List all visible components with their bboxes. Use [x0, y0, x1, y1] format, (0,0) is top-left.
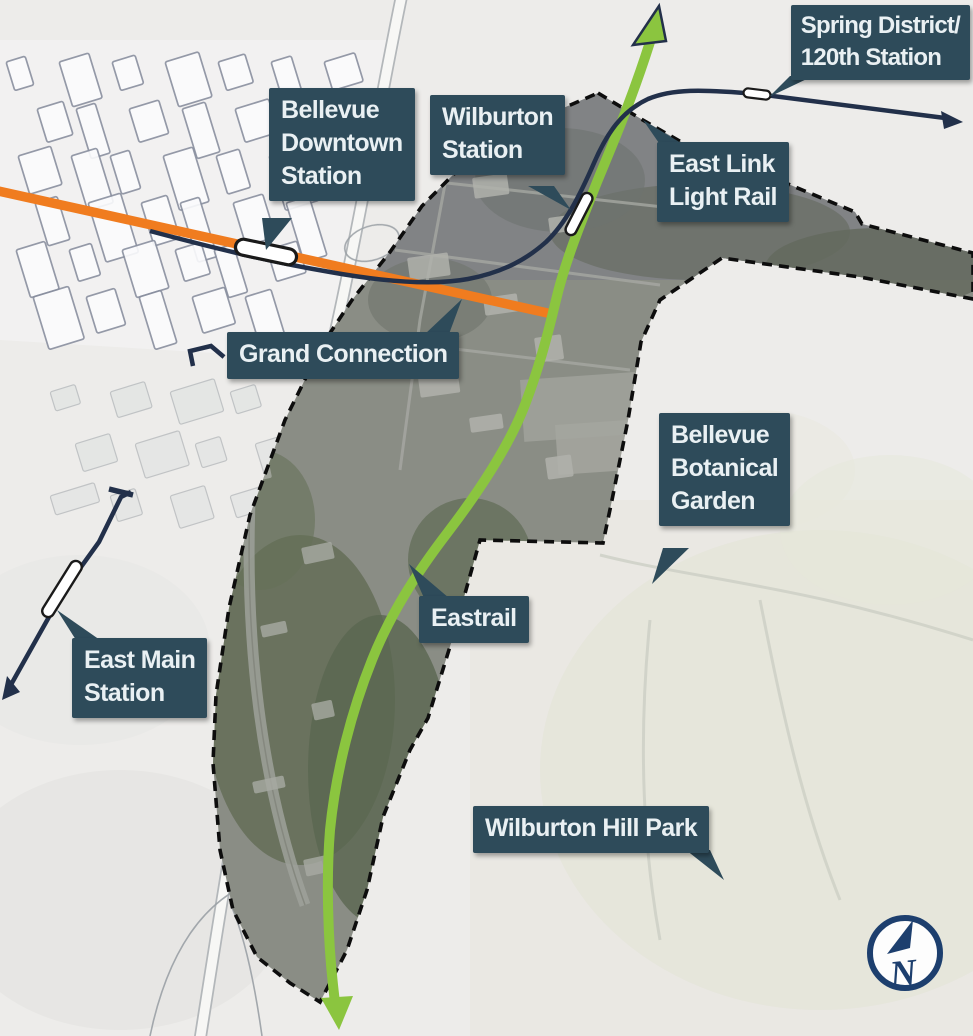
callout-line: East Link — [669, 148, 777, 181]
map-canvas: N Bellevue Downtown Station Wilburton St… — [0, 0, 973, 1036]
callout-line: Station — [281, 160, 403, 193]
callout-line: 120th Station — [801, 42, 960, 74]
callout-line: East Main — [84, 644, 195, 677]
callout-line: Station — [442, 134, 553, 167]
callout-wilburton-station: Wilburton Station — [430, 95, 565, 175]
callout-line: Bellevue — [671, 419, 778, 452]
callout-east-link-light-rail: East Link Light Rail — [657, 142, 789, 222]
callout-line: Wilburton — [442, 101, 553, 134]
callout-bellevue-downtown-station: Bellevue Downtown Station — [269, 88, 415, 201]
callout-east-main-station: East Main Station — [72, 638, 207, 718]
callout-line: Bellevue — [281, 94, 403, 127]
callout-eastrail: Eastrail — [419, 596, 529, 643]
callout-line: Grand Connection — [239, 338, 447, 371]
callout-line: Light Rail — [669, 181, 777, 214]
callout-line: Garden — [671, 485, 778, 518]
callout-line: Wilburton Hill Park — [485, 812, 697, 845]
compass-n-label: N — [887, 952, 920, 996]
callout-line: Eastrail — [431, 602, 517, 635]
callout-bellevue-botanical-garden: Bellevue Botanical Garden — [659, 413, 790, 526]
callout-wilburton-hill-park: Wilburton Hill Park — [473, 806, 709, 853]
callout-line: Downtown — [281, 127, 403, 160]
callout-grand-connection: Grand Connection — [227, 332, 459, 379]
callout-spring-district-station: Spring District/ 120th Station — [791, 5, 970, 80]
callout-line: Spring District/ — [801, 10, 960, 42]
spring-district-station-marker — [743, 88, 771, 100]
callout-line: Station — [84, 677, 195, 710]
callout-line: Botanical — [671, 452, 778, 485]
